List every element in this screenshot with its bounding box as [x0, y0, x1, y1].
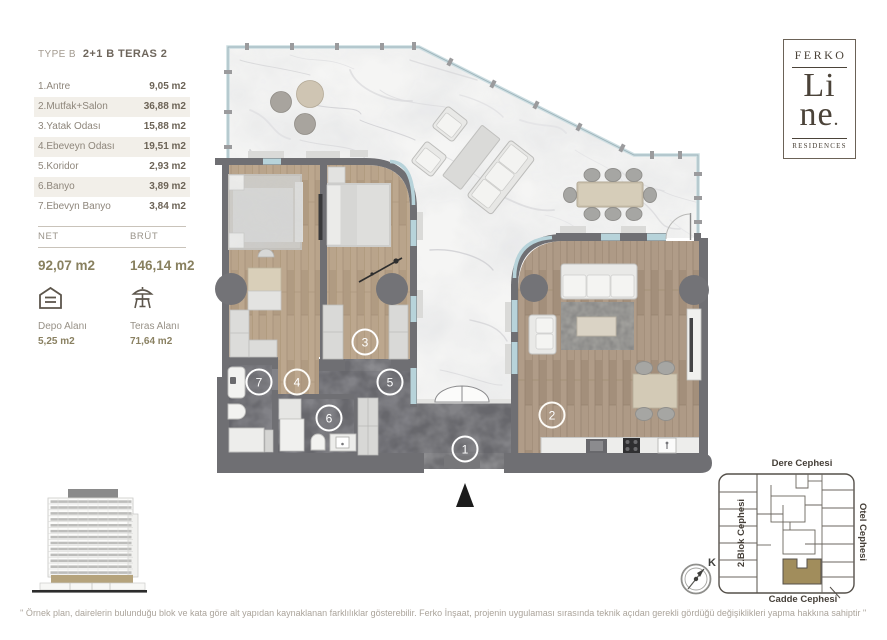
svg-text:4: 4	[294, 376, 301, 390]
svg-text:Cadde Cephesi: Cadde Cephesi	[769, 594, 838, 605]
svg-text:2.Blok Cephesi: 2.Blok Cephesi	[736, 499, 747, 567]
svg-text:6: 6	[326, 412, 333, 426]
svg-text:K: K	[708, 557, 716, 569]
svg-text:3: 3	[362, 336, 369, 350]
svg-text:5: 5	[387, 376, 394, 390]
svg-text:1: 1	[462, 443, 469, 457]
svg-text:Otel Cephesi: Otel Cephesi	[857, 503, 868, 561]
svg-text:2: 2	[549, 409, 556, 423]
svg-text:7: 7	[256, 376, 263, 390]
svg-text:Dere Cephesi: Dere Cephesi	[772, 458, 833, 469]
